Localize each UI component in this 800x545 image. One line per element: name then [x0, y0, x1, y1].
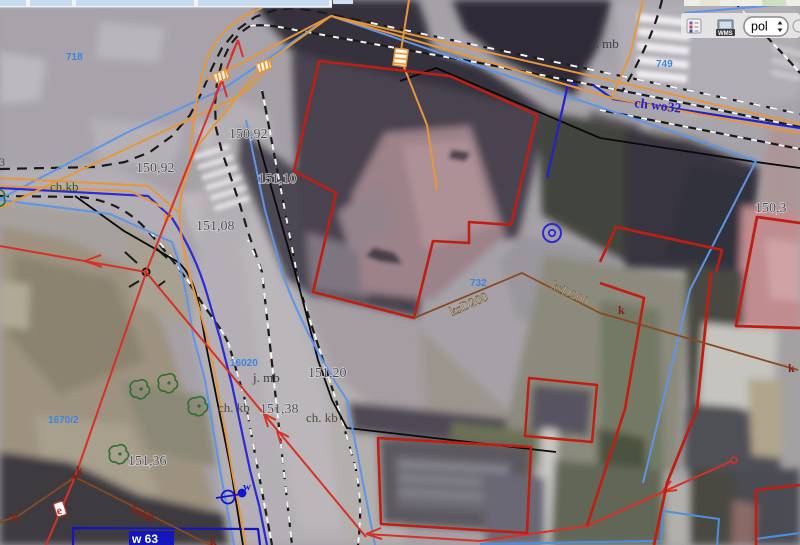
svg-text:749: 749	[656, 59, 673, 70]
svg-text:k: k	[788, 361, 795, 375]
svg-text:150,3: 150,3	[755, 201, 787, 216]
svg-text:151,36: 151,36	[128, 454, 167, 469]
svg-text:16020: 16020	[230, 358, 258, 369]
svg-text:718: 718	[66, 52, 83, 63]
svg-text:1670/2: 1670/2	[48, 415, 79, 426]
svg-text:3: 3	[0, 155, 5, 169]
svg-text:j. mb: j. mb	[591, 36, 619, 51]
svg-text:151,20: 151,20	[308, 366, 347, 381]
svg-text:w: w	[243, 481, 251, 493]
svg-text:151,08: 151,08	[196, 219, 235, 234]
svg-text:151,10: 151,10	[258, 172, 297, 187]
svg-text:ch.kb: ch.kb	[50, 179, 79, 194]
svg-text:ch. kb: ch. kb	[306, 410, 338, 425]
svg-text:j. mb: j. mb	[252, 370, 280, 385]
svg-text:732: 732	[470, 278, 487, 289]
svg-text:WMS: WMS	[718, 31, 733, 37]
svg-text:k: k	[76, 463, 83, 477]
svg-text:150,92: 150,92	[229, 127, 268, 142]
svg-text:151,38: 151,38	[260, 402, 299, 417]
svg-text:ch. kb: ch. kb	[218, 400, 250, 415]
svg-text:150,92: 150,92	[136, 161, 175, 176]
svg-text:k: k	[618, 303, 625, 317]
svg-text:pol: pol	[751, 20, 768, 34]
svg-text:w 63: w 63	[131, 532, 158, 545]
svg-text:k: k	[12, 510, 19, 524]
svg-text:k: k	[210, 534, 217, 545]
